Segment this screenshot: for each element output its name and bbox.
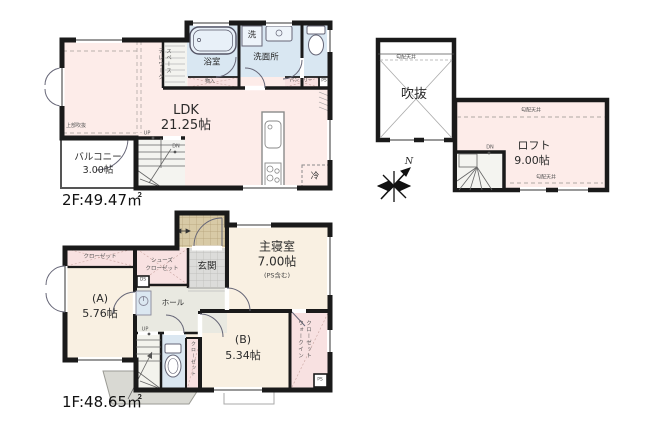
floorplan-page: LDK 21.25帖 バルコニー 3.00帖 2F:49.47㎡ 浴室 洗 洗面… bbox=[0, 0, 650, 430]
label-loft-size: 9.00帖 bbox=[514, 155, 550, 167]
label-closet-top: クローゼット bbox=[83, 254, 116, 260]
sink-icon bbox=[266, 26, 292, 41]
label-shoes-2: クローゼット bbox=[145, 266, 178, 272]
label-closet-b: クローゼット bbox=[190, 341, 197, 377]
label-shoes-1: シューズ bbox=[151, 258, 173, 264]
compass-icon bbox=[378, 168, 410, 202]
stairs-loft bbox=[457, 152, 504, 190]
dn-marker-2f bbox=[174, 151, 177, 154]
label-void: 吹抜 bbox=[401, 88, 427, 102]
label-slope-3: 勾配天井 bbox=[536, 175, 556, 181]
label-dn-loft: DN bbox=[486, 145, 494, 151]
label-up-1f: UP bbox=[142, 327, 149, 333]
label-wic: ウォークイン クローゼット bbox=[296, 320, 312, 359]
label-closet-b-text: クローゼット bbox=[190, 341, 197, 377]
label-north: N bbox=[405, 157, 413, 167]
label-room-a-size: 5.76帖 bbox=[82, 308, 118, 320]
label-ds: DS bbox=[140, 279, 146, 284]
label-room-b-size: 5.34帖 bbox=[225, 350, 261, 362]
label-up-2f: UP bbox=[144, 131, 151, 137]
kitchen-counter bbox=[262, 112, 284, 190]
up-marker-2f bbox=[152, 137, 155, 140]
label-slope-2: 勾配天井 bbox=[521, 108, 541, 114]
floorplan-drawing bbox=[0, 0, 650, 430]
label-fridge: 冷 bbox=[311, 172, 320, 181]
label-washer: 洗 bbox=[248, 31, 257, 40]
label-master-size: 7.00帖 bbox=[258, 255, 297, 268]
label-2f-area: 2F:49.47㎡ bbox=[62, 192, 142, 209]
up-marker-1f bbox=[148, 333, 151, 336]
label-pantry: パントリー bbox=[290, 80, 313, 85]
label-ldk-size: 21.25帖 bbox=[161, 119, 211, 133]
label-loft-name: ロフト bbox=[518, 140, 551, 152]
label-bath: 浴室 bbox=[203, 58, 220, 67]
label-wic-line2: クローゼット bbox=[304, 320, 312, 359]
label-master-name: 主寝室 bbox=[259, 240, 295, 253]
label-washroom: 洗面所 bbox=[253, 53, 279, 62]
label-storage: 物入 bbox=[205, 79, 215, 85]
label-ps-2f: PS bbox=[321, 80, 327, 85]
toilet-1f-icon bbox=[165, 344, 181, 377]
balcony bbox=[61, 139, 135, 188]
label-balcony-size: 3.00帖 bbox=[83, 166, 114, 176]
label-telework: テレワーク スペース bbox=[156, 48, 172, 81]
label-wic-line1: ウォークイン bbox=[296, 320, 304, 359]
label-telework-line1: テレワーク bbox=[156, 48, 164, 81]
label-room-a-name: (A) bbox=[92, 293, 108, 305]
label-entrance: 玄関 bbox=[197, 262, 216, 272]
label-ps-1f: PS bbox=[317, 379, 323, 384]
label-open-above: 上部吹抜 bbox=[66, 124, 86, 130]
label-ldk-name: LDK bbox=[173, 104, 199, 118]
label-master-note: (PS含む) bbox=[264, 272, 290, 279]
label-room-b-name: (B) bbox=[235, 334, 251, 346]
plan-loft bbox=[378, 40, 607, 202]
label-telework-line2: スペース bbox=[164, 48, 172, 81]
basin-icon bbox=[136, 291, 151, 315]
label-hall: ホール bbox=[162, 299, 185, 307]
label-balcony-name: バルコニー bbox=[74, 153, 121, 163]
toilet-2f-icon bbox=[307, 26, 325, 55]
tub-icon bbox=[190, 27, 236, 54]
label-1f-area: 1F:48.65㎡ bbox=[62, 394, 142, 411]
label-slope-1: 勾配天井 bbox=[396, 55, 416, 61]
label-dn-2f: DN bbox=[172, 144, 180, 150]
